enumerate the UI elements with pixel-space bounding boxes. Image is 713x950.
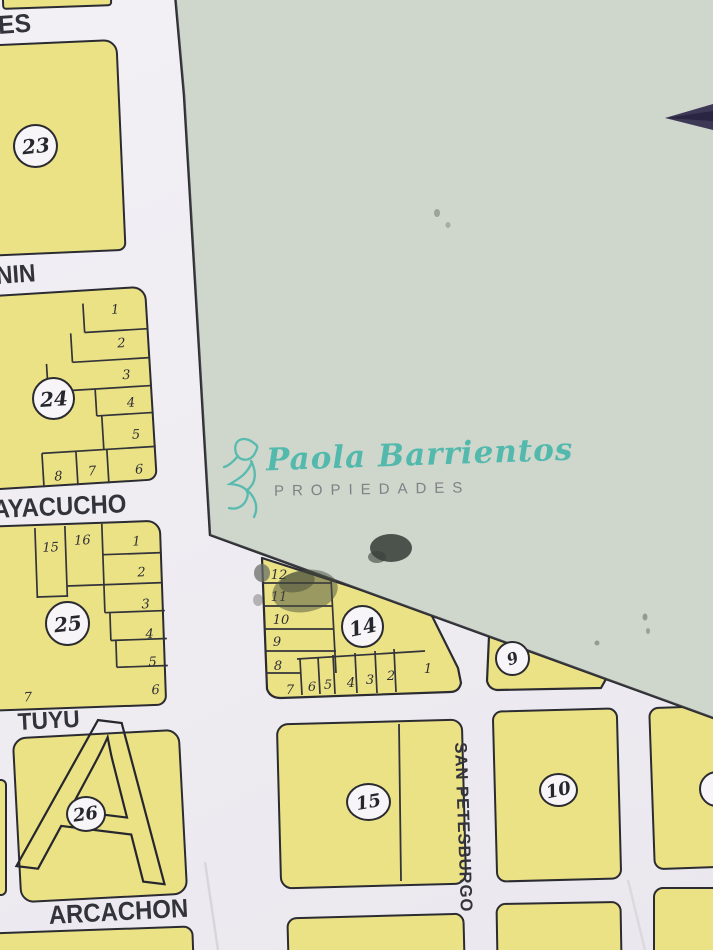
lot-label: 4 bbox=[125, 396, 135, 412]
block-number: 15 bbox=[354, 789, 382, 814]
lot-label: 5 bbox=[148, 655, 157, 670]
paper-crease bbox=[628, 880, 645, 950]
lot-label: 6 bbox=[308, 680, 316, 695]
lot-label: 9 bbox=[273, 635, 281, 650]
lot-label: 2 bbox=[386, 669, 395, 684]
street-label-nin: NIN bbox=[0, 259, 37, 291]
lot-label: 10 bbox=[273, 613, 290, 628]
block-number: 10 bbox=[544, 777, 573, 803]
overlay-letter-a: A bbox=[10, 664, 190, 932]
lot-label: 1 bbox=[132, 534, 141, 549]
lot-label: 3 bbox=[122, 368, 131, 383]
lot-label: 3 bbox=[366, 673, 374, 688]
green-overlay bbox=[175, 0, 713, 719]
block-number: 24 bbox=[39, 386, 68, 412]
lot-label: 1 bbox=[424, 662, 432, 677]
lot-label: 7 bbox=[23, 690, 33, 705]
lot-label: 1 bbox=[111, 302, 120, 317]
block-number: 23 bbox=[20, 133, 50, 160]
lot-label: 16 bbox=[74, 533, 91, 549]
lot-label: 6 bbox=[135, 462, 144, 477]
lot-label: 7 bbox=[88, 464, 98, 480]
street-label-ayacucho: AYACUCHO bbox=[0, 488, 127, 525]
lot-label: 3 bbox=[141, 597, 150, 612]
block-circle-14: 14 bbox=[341, 605, 384, 648]
block-circle-9: 9 bbox=[495, 641, 530, 676]
block-circle-23: 23 bbox=[13, 124, 58, 168]
lot-label: 5 bbox=[131, 427, 140, 442]
block-number: 26 bbox=[72, 802, 100, 826]
lot-label: 7 bbox=[286, 683, 295, 698]
block-number: 14 bbox=[346, 612, 378, 641]
lot-label: 5 bbox=[324, 678, 332, 693]
block-15-divider bbox=[399, 724, 401, 881]
block-number: 25 bbox=[52, 610, 82, 637]
lot-label: 2 bbox=[136, 565, 146, 580]
block-circle-24: 24 bbox=[32, 377, 75, 420]
lot-label: 4 bbox=[144, 627, 154, 642]
lot-label: 8 bbox=[274, 659, 282, 674]
watermark-subtitle: PROPIEDADES bbox=[274, 479, 471, 499]
lot-label: 4 bbox=[346, 676, 355, 691]
street-label-es: ES bbox=[0, 8, 32, 41]
block-number: 9 bbox=[504, 648, 521, 670]
lot-label: 15 bbox=[42, 540, 59, 556]
street-label-tuyu: TUYU bbox=[17, 706, 80, 737]
lot-label: 8 bbox=[54, 469, 63, 484]
block-circle-26: 26 bbox=[66, 796, 106, 832]
block-circle-15: 15 bbox=[346, 783, 391, 821]
block-circle-25: 25 bbox=[45, 601, 90, 646]
paper-crease bbox=[205, 862, 218, 950]
block-circle-10: 10 bbox=[539, 773, 578, 807]
lot-label: 2 bbox=[116, 336, 126, 352]
map-photo: 1 2 3 4 5 6 7 8 15 16 1 2 bbox=[0, 0, 713, 950]
